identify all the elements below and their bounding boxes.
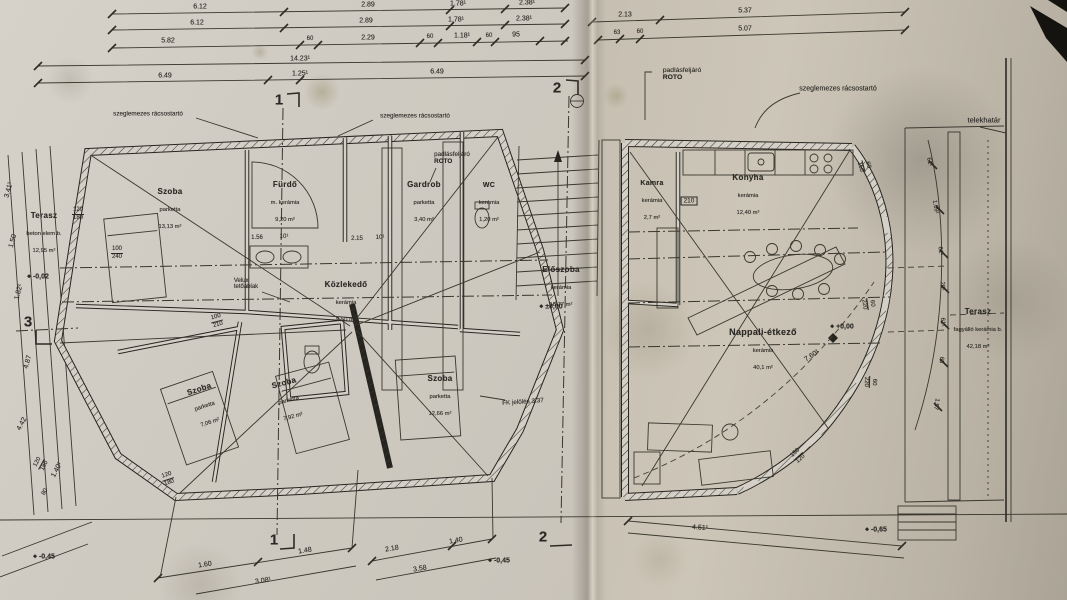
room-terasz-right: Teraszfagyálló kerámia b.42,18 m²	[954, 302, 1003, 352]
truss-label-left: szeglemezes rácsostartó	[113, 111, 183, 118]
truss-label-right: szeglemezes rácsostartó	[799, 86, 876, 93]
opening-size: 60220	[863, 376, 877, 388]
section-marker-2-top: 2	[553, 80, 561, 97]
level-marker: -0,02	[27, 274, 49, 281]
dim: 2.89	[361, 2, 375, 9]
opening-size: 210	[681, 197, 698, 206]
room-gardrob: Gardrobparketta3,40 m²	[407, 175, 441, 225]
dim: 6.49	[430, 69, 444, 76]
dim: 60	[427, 34, 434, 40]
dim: 2.38¹	[519, 0, 535, 7]
level-marker: -0,45	[488, 558, 510, 565]
attic-hatch-label-right: padlásfeljáróROTO	[663, 67, 702, 81]
dim: 5.37	[738, 8, 752, 15]
floorplan-linework	[0, 0, 1067, 600]
room-kamra: Kamrakerámia2,7 m²	[640, 173, 663, 223]
page-corner-arrow	[1030, 0, 1067, 62]
dim: 1.18¹	[454, 33, 470, 40]
stairs	[516, 140, 620, 498]
dim: 61¹	[937, 246, 944, 255]
level-marker: +0,00	[830, 324, 854, 331]
dim: 1.78¹	[448, 17, 464, 24]
dim: 6.49	[158, 73, 172, 80]
dim: 1.56	[251, 235, 263, 241]
ground-line	[0, 514, 1067, 520]
dim: 2.15	[351, 236, 363, 242]
dim: 1.25¹	[292, 71, 308, 78]
dim: 1.78¹	[450, 1, 466, 8]
dim: 14.23¹	[290, 56, 310, 63]
dim: 10¹	[376, 235, 385, 241]
dim: 10¹	[280, 234, 289, 240]
velux-label: Veluxtetőablak	[234, 278, 258, 290]
level-marker: -0,65	[865, 527, 887, 534]
dim: 60	[486, 33, 493, 39]
dim: 63	[938, 356, 944, 363]
dim: 2.89	[359, 18, 373, 25]
dim: 6.12	[190, 20, 204, 27]
room-furdo: Fürdőm. kerámia9,20 m²	[271, 175, 300, 225]
dim: 5.07	[738, 26, 752, 33]
room-nappali: Nappali-étkezőkerámia40,1 m²	[729, 323, 797, 373]
dim: 60	[307, 36, 314, 42]
room-szoba-4: Szobaparketta12,66 m²	[427, 369, 452, 419]
opening-size: 60220	[860, 297, 876, 311]
section-marker-3: 3	[24, 314, 32, 331]
room-konyha: Konyhakerámia12,40 m²	[732, 168, 763, 218]
dim: 5.82	[161, 38, 175, 45]
room-szoba-1: Szobaparketta13,13 m²	[157, 182, 182, 232]
dim: 60	[637, 29, 644, 35]
floorplan-canvas: szeglemezes rácsostartó szeglemezes rács…	[0, 0, 1067, 600]
level-marker: ±0,00	[539, 304, 562, 311]
plot-boundary-label: telekhatár	[968, 116, 1001, 125]
dim: 4.51¹	[692, 524, 708, 532]
dim: 2.29	[361, 35, 375, 42]
section-marker-1-top: 1	[275, 92, 283, 109]
dim: 20¹	[939, 281, 946, 290]
room-terasz-left: Teraszbeton elem b.12,95 m²	[26, 206, 61, 256]
attic-hatch-label-left: padlásfeljáróROTO	[434, 151, 470, 165]
opening-size: 120180	[72, 207, 84, 221]
opening-size: 100240	[111, 246, 123, 260]
dim: 2.13	[618, 12, 632, 19]
room-kozlekedo: Közlekedőkerámia9,50 m²	[325, 275, 368, 325]
dim: 95	[512, 32, 520, 39]
truss-label-mid: szeglemezes rácsostartó	[380, 113, 450, 120]
section-marker-1-bottom: 1	[270, 532, 278, 549]
section-marker-2-bottom: 2	[539, 529, 547, 546]
dim: 61¹	[939, 318, 945, 327]
dim: 63	[614, 30, 621, 36]
level-marker: -0,45	[33, 554, 55, 561]
dim: 6.12	[193, 4, 207, 11]
room-wc: WCkerámia1,20 m²	[479, 175, 500, 225]
dim: 2.38¹	[516, 16, 532, 23]
bottom-dimension-lines	[0, 470, 906, 594]
